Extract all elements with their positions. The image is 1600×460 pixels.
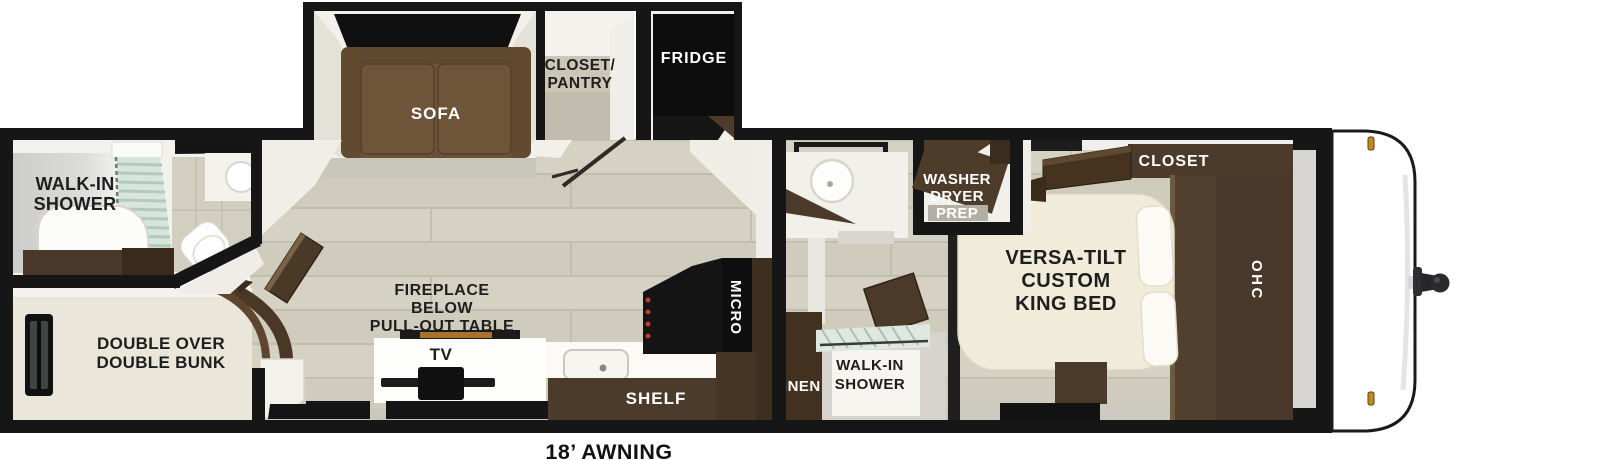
svg-text:DRYER: DRYER bbox=[930, 188, 983, 205]
svg-text:PREP: PREP bbox=[936, 205, 978, 222]
svg-text:CLOSET/: CLOSET/ bbox=[545, 57, 616, 74]
svg-text:SOFA: SOFA bbox=[411, 104, 461, 123]
svg-text:SHOWER: SHOWER bbox=[835, 376, 906, 393]
svg-text:WALK-IN: WALK-IN bbox=[836, 357, 904, 374]
svg-text:BELOW: BELOW bbox=[411, 300, 473, 317]
svg-text:OHC: OHC bbox=[1248, 260, 1265, 301]
svg-text:18’ AWNING: 18’ AWNING bbox=[545, 440, 672, 460]
svg-text:MICRO: MICRO bbox=[727, 280, 744, 335]
svg-text:FIREPLACE: FIREPLACE bbox=[394, 282, 489, 299]
svg-text:WALK-IN: WALK-IN bbox=[35, 174, 114, 194]
svg-text:TV: TV bbox=[430, 345, 453, 364]
svg-text:CUSTOM: CUSTOM bbox=[1021, 270, 1110, 292]
svg-text:CLOSET: CLOSET bbox=[1139, 153, 1210, 170]
svg-text:SHOWER: SHOWER bbox=[34, 194, 117, 214]
svg-text:PANTRY: PANTRY bbox=[548, 75, 613, 92]
svg-text:VERSA-TILT: VERSA-TILT bbox=[1005, 247, 1126, 269]
svg-text:WASHER: WASHER bbox=[923, 171, 991, 188]
svg-text:DOUBLE OVER: DOUBLE OVER bbox=[97, 334, 225, 353]
svg-text:KING BED: KING BED bbox=[1015, 293, 1117, 315]
svg-text:SHELF: SHELF bbox=[626, 389, 687, 408]
svg-text:FRIDGE: FRIDGE bbox=[661, 50, 727, 67]
svg-text:DOUBLE BUNK: DOUBLE BUNK bbox=[97, 353, 226, 372]
